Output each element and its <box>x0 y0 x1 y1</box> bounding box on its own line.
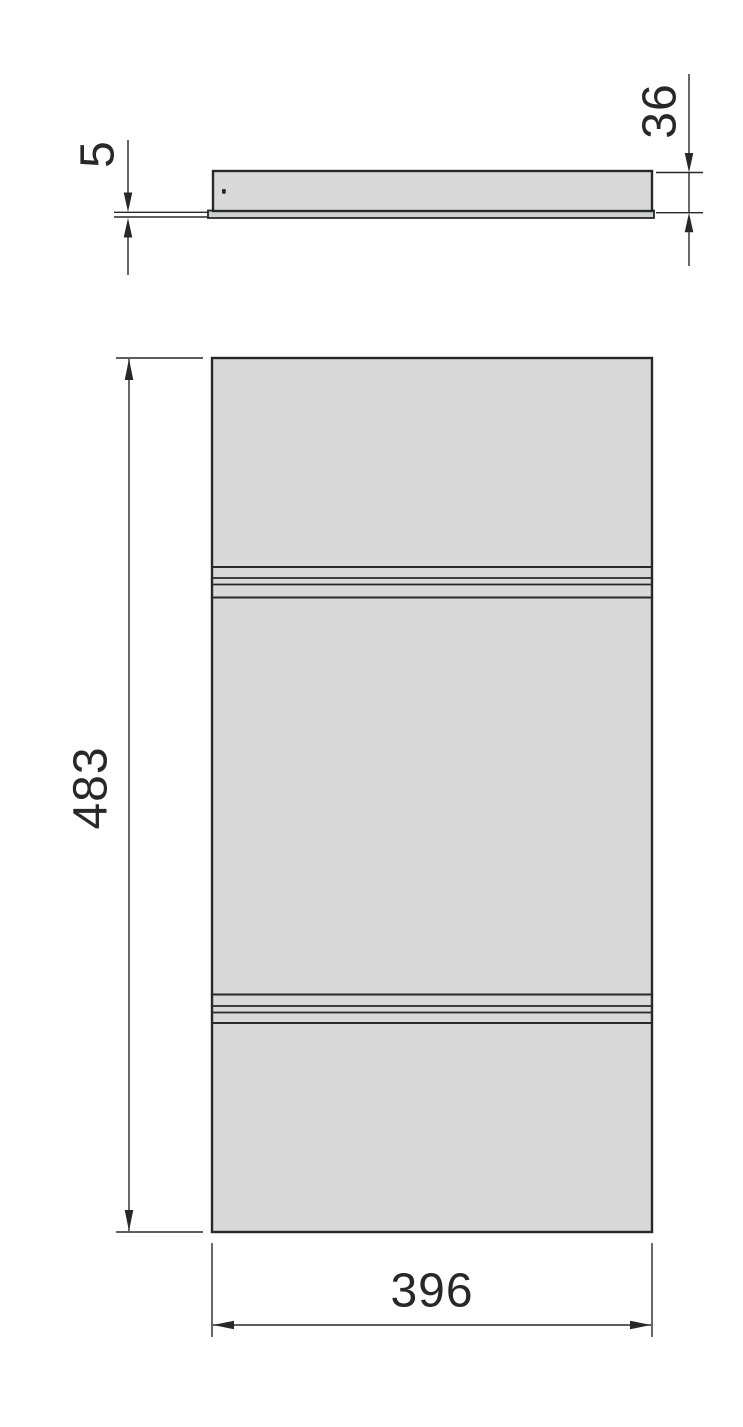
drawing-page: 5 36 <box>0 0 743 1427</box>
arrowhead-down-icon <box>685 153 694 173</box>
dim-base-thickness: 5 <box>72 140 209 275</box>
arrowhead-down-icon <box>125 1210 134 1231</box>
dim-panel-width: 396 <box>212 1243 652 1337</box>
technical-drawing: 5 36 <box>0 0 743 1427</box>
dim-panel-width-label: 396 <box>390 1265 473 1318</box>
front-view <box>212 358 652 1232</box>
arrowhead-up-icon <box>125 359 134 380</box>
arrowhead-left-icon <box>213 1321 234 1330</box>
arrowhead-up-icon <box>685 213 694 233</box>
side-view-panel-body <box>213 171 652 211</box>
front-view-panel <box>212 358 652 1232</box>
dim-panel-thickness-label: 36 <box>634 83 687 138</box>
dim-panel-height: 483 <box>65 358 204 1232</box>
side-view <box>208 171 654 218</box>
arrowhead-down-icon <box>124 193 133 213</box>
arrowhead-up-icon <box>124 218 133 238</box>
arrowhead-right-icon <box>630 1321 651 1330</box>
side-view-pilot-hole <box>222 189 226 194</box>
dim-panel-height-label: 483 <box>65 746 118 829</box>
dim-base-thickness-label: 5 <box>72 140 125 168</box>
